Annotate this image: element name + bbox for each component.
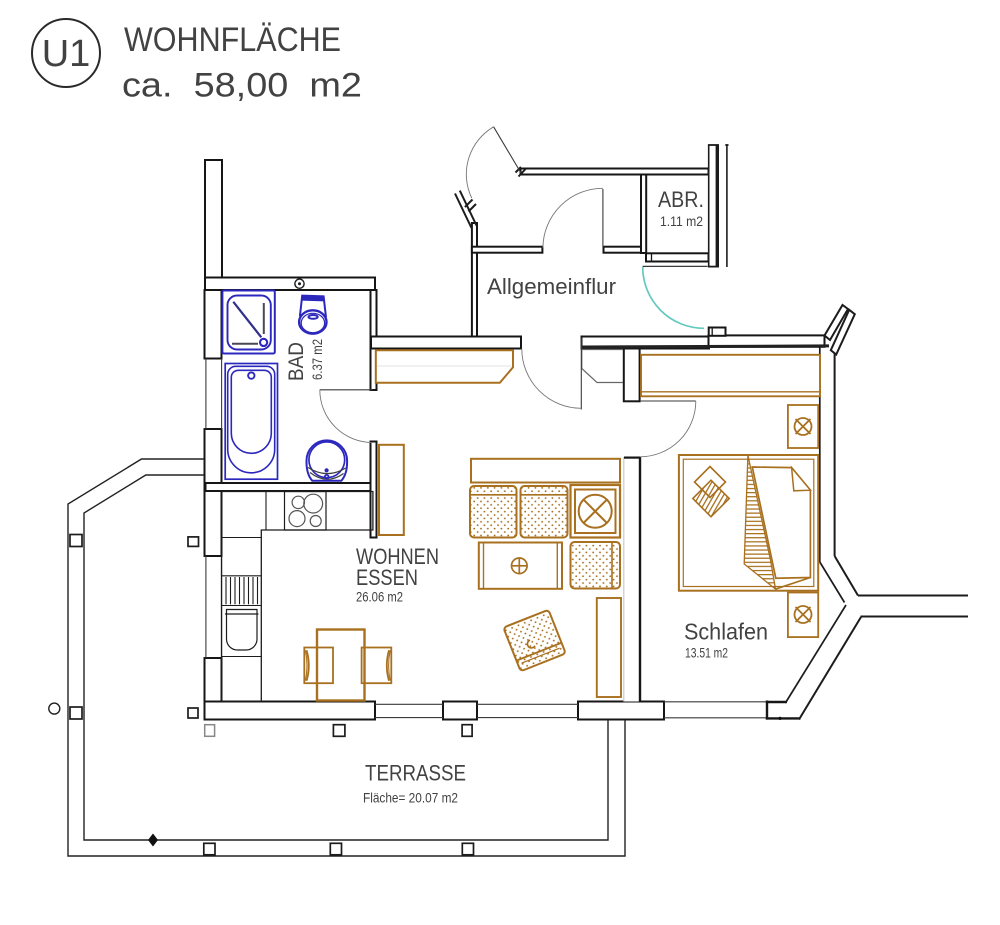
svg-text:26.06 m2: 26.06 m2 bbox=[356, 589, 403, 605]
svg-text:ESSEN: ESSEN bbox=[356, 565, 418, 590]
svg-text:Schlafen: Schlafen bbox=[684, 619, 768, 645]
svg-text:BAD: BAD bbox=[284, 342, 308, 381]
svg-text:Fläche= 20.07 m2: Fläche= 20.07 m2 bbox=[363, 791, 458, 806]
svg-text:WOHNFLÄCHE: WOHNFLÄCHE bbox=[124, 21, 341, 59]
svg-text:ca. 58,00 m2: ca. 58,00 m2 bbox=[122, 67, 362, 105]
svg-text:Allgemeinflur: Allgemeinflur bbox=[487, 274, 616, 299]
svg-text:1.11 m2: 1.11 m2 bbox=[660, 213, 703, 229]
svg-text:U1: U1 bbox=[42, 33, 91, 75]
svg-text:TERRASSE: TERRASSE bbox=[365, 761, 466, 786]
svg-text:ABR.: ABR. bbox=[658, 187, 704, 212]
svg-text:13.51 m2: 13.51 m2 bbox=[685, 646, 728, 661]
svg-text:6.37 m2: 6.37 m2 bbox=[310, 339, 325, 380]
